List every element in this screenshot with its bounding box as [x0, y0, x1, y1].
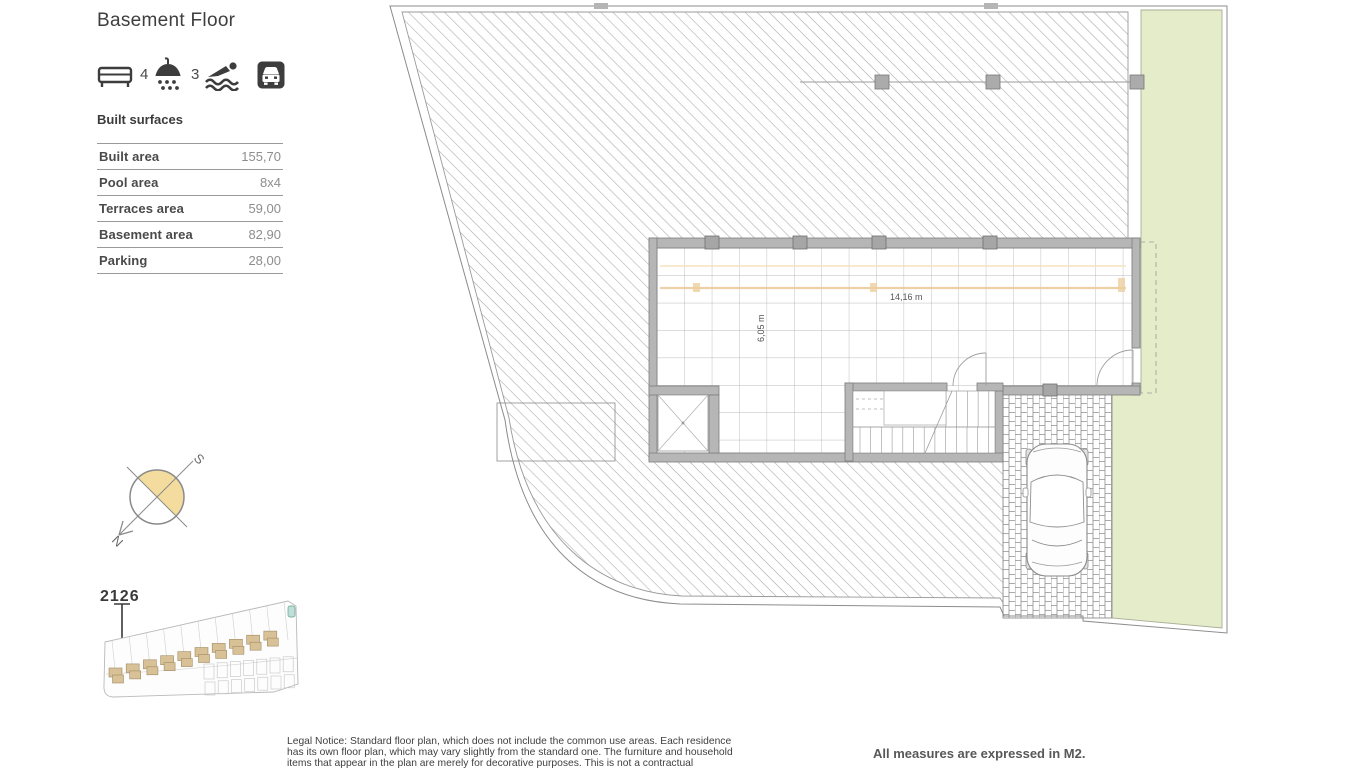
elevator-shaft [658, 395, 708, 451]
bathroom-count: 3 [191, 66, 199, 83]
compass-rose: S N [105, 443, 209, 553]
floorplan-page: 14,16 m 6,05 m Basement Floor 4 [0, 0, 1366, 768]
bed-icon [97, 62, 133, 90]
built-surfaces-heading: Built surfaces [97, 112, 183, 127]
bedroom-count: 4 [140, 66, 148, 83]
table-row: Built area 155,70 [97, 144, 283, 170]
siteplan-marker [288, 606, 295, 617]
pool-icon [204, 59, 242, 91]
page-title: Basement Floor [97, 10, 235, 32]
table-row: Terraces area 59,00 [97, 196, 283, 222]
built-surfaces-table: Built area 155,70 Pool area 8x4 Terraces… [97, 143, 283, 274]
legal-notice: Legal Notice: Standard floor plan, which… [287, 736, 737, 768]
compass-south-label: S [191, 451, 208, 468]
unit-number-label: 2126 [100, 588, 140, 605]
measures-note: All measures are expressed in M2. [873, 746, 1085, 761]
compass-north-label: N [109, 533, 126, 550]
car-top-view [1023, 444, 1091, 576]
staircase [853, 391, 995, 453]
table-row: Pool area 8x4 [97, 170, 283, 196]
table-row: Basement area 82,90 [97, 222, 283, 248]
height-dimension-label: 6,05 m [756, 314, 766, 342]
width-dimension-label: 14,16 m [890, 292, 923, 302]
siteplan-thumbnail: 2126 [92, 584, 310, 712]
table-row: Parking 28,00 [97, 248, 283, 274]
garage-icon [257, 61, 285, 89]
shower-icon [152, 57, 184, 93]
